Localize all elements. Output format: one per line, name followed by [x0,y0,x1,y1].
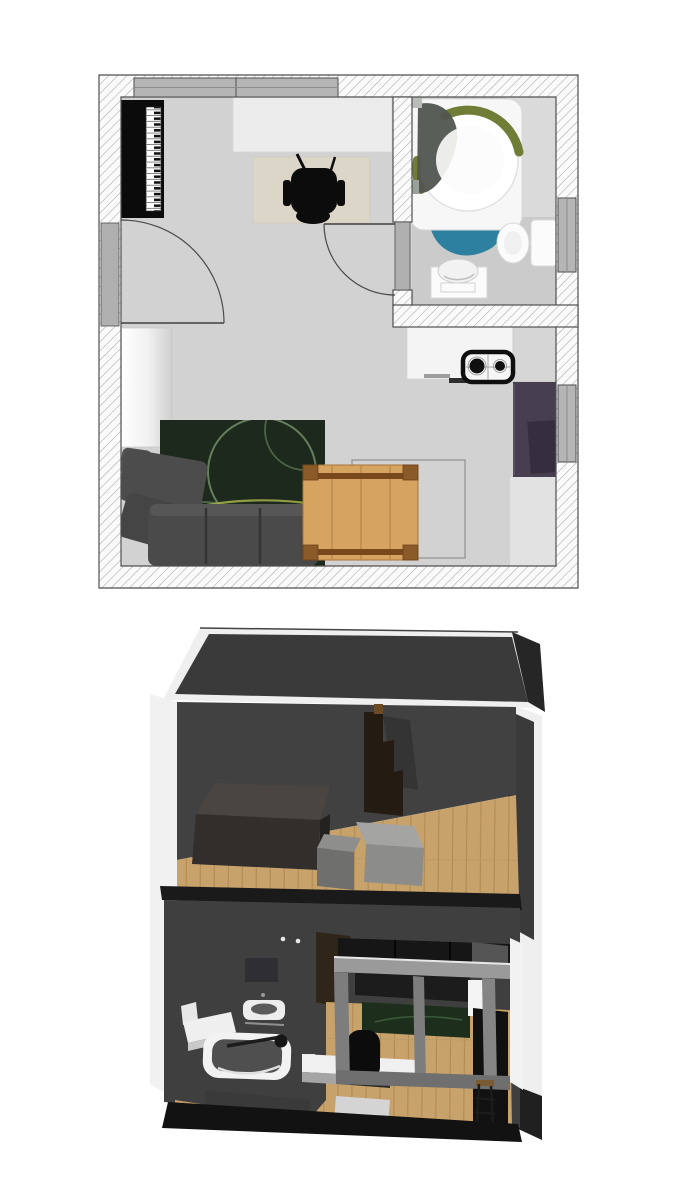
bathtub-3d [202,1031,292,1080]
bathroom-wall-upper [393,97,412,222]
bathroom-wall-bottom [393,305,578,327]
desk [233,97,392,152]
right-window-exterior [510,938,523,1090]
ceiling-light-dot [296,939,301,944]
storage-box-large [356,822,424,886]
ceiling-light-dot [281,937,286,942]
armchair [513,382,560,477]
bathroom-window [558,198,576,272]
bed-box [192,783,330,870]
roof [163,628,545,712]
floor-plan-figure [99,75,578,594]
bathtub [408,96,522,230]
bathroom-mirror [245,958,278,982]
scene-svg [0,0,675,1200]
screenshot-canvas [0,0,675,1200]
top-window [134,78,338,97]
living-room-window [558,385,576,462]
render-3d-figure [150,628,545,1142]
right-side-cabinet-strip [510,477,556,566]
cooktop [463,352,513,382]
dining-table [303,465,418,560]
piano [120,100,164,218]
